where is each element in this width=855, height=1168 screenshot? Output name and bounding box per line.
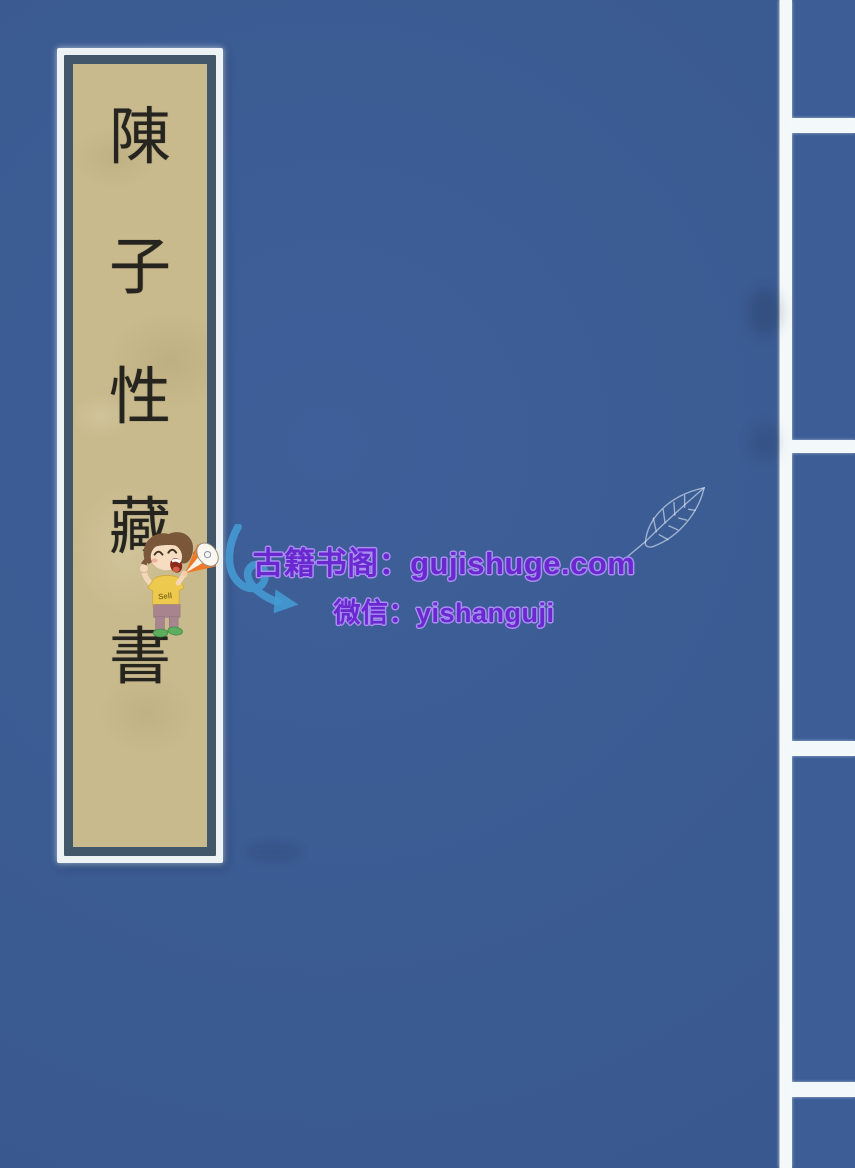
megaphone-kid-mascot: Sell: [136, 528, 234, 641]
mascot-pants: [154, 605, 180, 618]
mascot-shoe: [167, 626, 183, 636]
mascot-hand: [181, 570, 188, 577]
shadow-smudge: [750, 425, 780, 459]
page-separator-band: [791, 440, 855, 453]
title-label-frame: 陳 子 性 藏 書: [64, 55, 216, 856]
mascot-blush: [152, 559, 158, 563]
title-label: 陳 子 性 藏 書: [57, 48, 223, 863]
watermark-wechat-text: 微信：yishanguji: [248, 591, 640, 630]
shadow-smudge: [748, 288, 782, 336]
shadow-smudge: [246, 842, 302, 862]
title-character: 子: [109, 236, 171, 298]
mascot-shoe: [153, 629, 168, 637]
page-separator-band: [791, 741, 855, 756]
page-separator-band: [791, 118, 855, 133]
mascot-shirt-text: Sell: [158, 591, 173, 601]
mascot-tongue: [173, 567, 180, 572]
title-label-paper: 陳 子 性 藏 書: [73, 64, 207, 847]
page-edge-divider-vertical: [779, 0, 792, 1168]
title-character: 性: [109, 366, 171, 428]
watermark-site-text: 古籍书阁：gujishuge.com: [248, 538, 640, 583]
leaf-veins: [653, 496, 695, 540]
watermark: 古籍书阁：gujishuge.com 微信：yishanguji: [248, 538, 640, 630]
scanned-book-photo: 陳 子 性 藏 書 Sell: [0, 0, 855, 1168]
mascot-hand: [139, 564, 148, 573]
page-separator-band: [791, 1082, 855, 1097]
leaf-outline: [645, 488, 704, 547]
title-character: 陳: [109, 106, 171, 168]
